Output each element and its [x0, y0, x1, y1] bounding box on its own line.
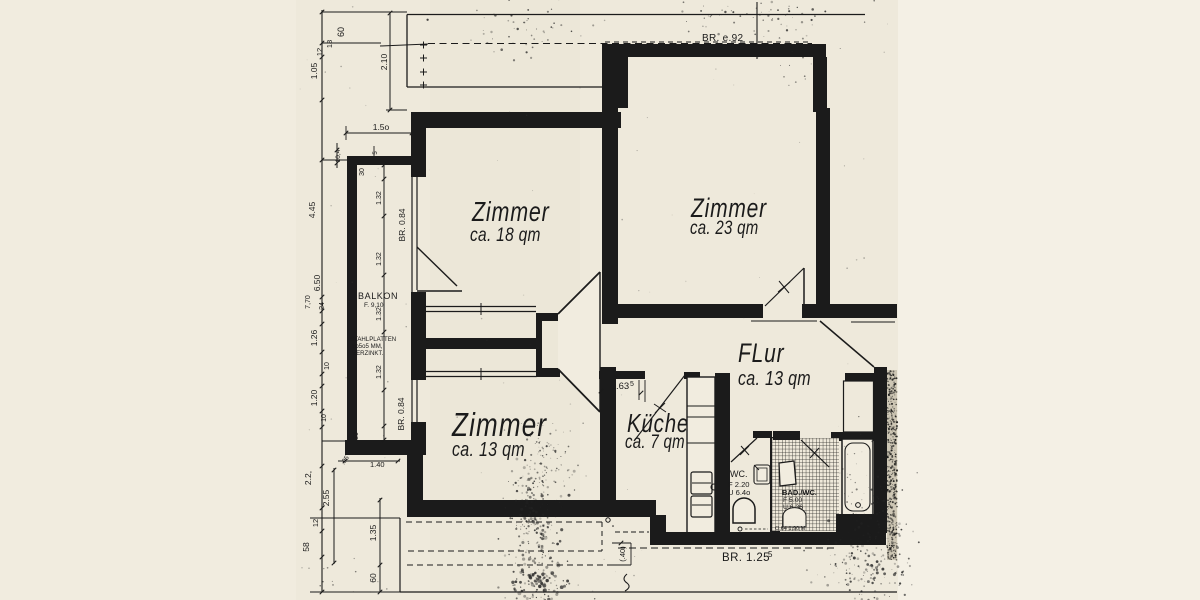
- svg-text:VERZINKT.: VERZINKT.: [352, 350, 383, 357]
- svg-text:5: 5: [768, 550, 773, 559]
- svg-text:BAD./WC.: BAD./WC.: [782, 488, 817, 497]
- svg-text:4.45: 4.45: [307, 201, 317, 218]
- svg-text:1.05: 1.05: [309, 62, 319, 79]
- svg-text:BR. e.92: BR. e.92: [702, 33, 743, 44]
- svg-text:2.10: 2.10: [379, 53, 389, 70]
- svg-text:60: 60: [336, 27, 346, 37]
- svg-text:1.32: 1.32: [376, 191, 383, 205]
- svg-text:1.35: 1.35: [368, 524, 378, 541]
- svg-text:1.26: 1.26: [309, 329, 319, 346]
- svg-text:1.40: 1.40: [370, 460, 385, 469]
- svg-text:24: 24: [319, 302, 326, 310]
- svg-text:BR. 0.84: BR. 0.84: [397, 208, 407, 241]
- svg-text:18: 18: [325, 40, 334, 48]
- svg-text:10: 10: [321, 414, 328, 422]
- svg-text:60: 60: [368, 573, 378, 583]
- svg-text:7,70: 7,70: [305, 295, 312, 309]
- svg-text:ca. 18 qm: ca. 18 qm: [470, 223, 541, 245]
- svg-text:FLur: FLur: [738, 339, 784, 369]
- svg-text:(.40): (.40): [618, 546, 627, 562]
- svg-text:10,4: 10,4: [335, 149, 342, 162]
- svg-text:ca. 23 qm: ca. 23 qm: [690, 216, 759, 238]
- svg-text:1.32: 1.32: [376, 307, 383, 321]
- svg-text:2.55: 2.55: [321, 489, 331, 506]
- svg-text:30: 30: [359, 168, 366, 176]
- svg-text:ca. 13 qm: ca. 13 qm: [452, 437, 525, 460]
- svg-text:5: 5: [630, 381, 634, 388]
- svg-text:ca. 13 qm: ca. 13 qm: [738, 366, 811, 389]
- svg-text:1.5o: 1.5o: [373, 122, 390, 132]
- svg-text:WC.: WC.: [730, 469, 748, 479]
- svg-text:F. 9,10: F. 9,10: [364, 302, 384, 309]
- svg-text:12: 12: [311, 519, 320, 527]
- svg-text:F 5.00: F 5.00: [783, 497, 802, 504]
- svg-text:U 6.4o: U 6.4o: [728, 488, 750, 497]
- svg-text:BALKON: BALKON: [358, 291, 398, 301]
- svg-text:BR. 0.84: BR. 0.84: [396, 397, 406, 430]
- svg-text:STAHLPLATTEN: STAHLPLATTEN: [350, 336, 396, 343]
- svg-text:10: 10: [324, 362, 331, 370]
- svg-text:.63: .63: [616, 381, 629, 392]
- svg-text:BR. 1.25: BR. 1.25: [722, 552, 770, 564]
- svg-text:2.2,: 2.2,: [303, 471, 313, 485]
- svg-text:58: 58: [301, 542, 311, 552]
- svg-text:ca. 7 qm: ca. 7 qm: [625, 430, 685, 452]
- svg-text:6.50: 6.50: [312, 274, 322, 291]
- svg-text:1.20: 1.20: [309, 389, 319, 406]
- svg-text:1.32: 1.32: [376, 365, 383, 379]
- svg-text:1.32: 1.32: [376, 252, 383, 266]
- svg-text:30: 30: [353, 432, 360, 440]
- svg-text:5o5o5 MM,: 5o5o5 MM,: [352, 343, 383, 350]
- svg-text:12: 12: [315, 48, 324, 56]
- svg-text:O.64 1.90 M: O.64 1.90 M: [775, 526, 806, 532]
